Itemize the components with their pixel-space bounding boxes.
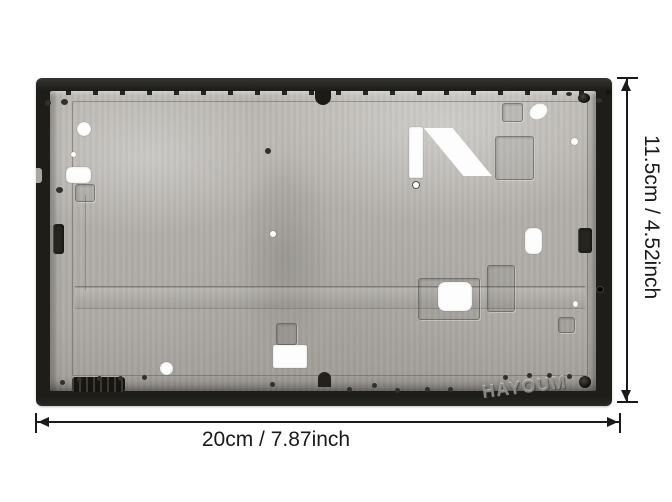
- right-arrow-icon: [607, 417, 618, 427]
- product-photo: HAYOUM 11.5cm / 4.52inch 20cm / 7.87inch: [0, 0, 672, 502]
- width-dimension-annotation: 20cm / 7.87inch: [0, 0, 672, 502]
- dimension-end-tick: [619, 413, 621, 433]
- dimension-line-horizontal: [37, 421, 619, 423]
- width-dimension-label: 20cm / 7.87inch: [176, 428, 376, 452]
- left-arrow-icon: [38, 417, 49, 427]
- dimension-end-tick: [35, 413, 37, 433]
